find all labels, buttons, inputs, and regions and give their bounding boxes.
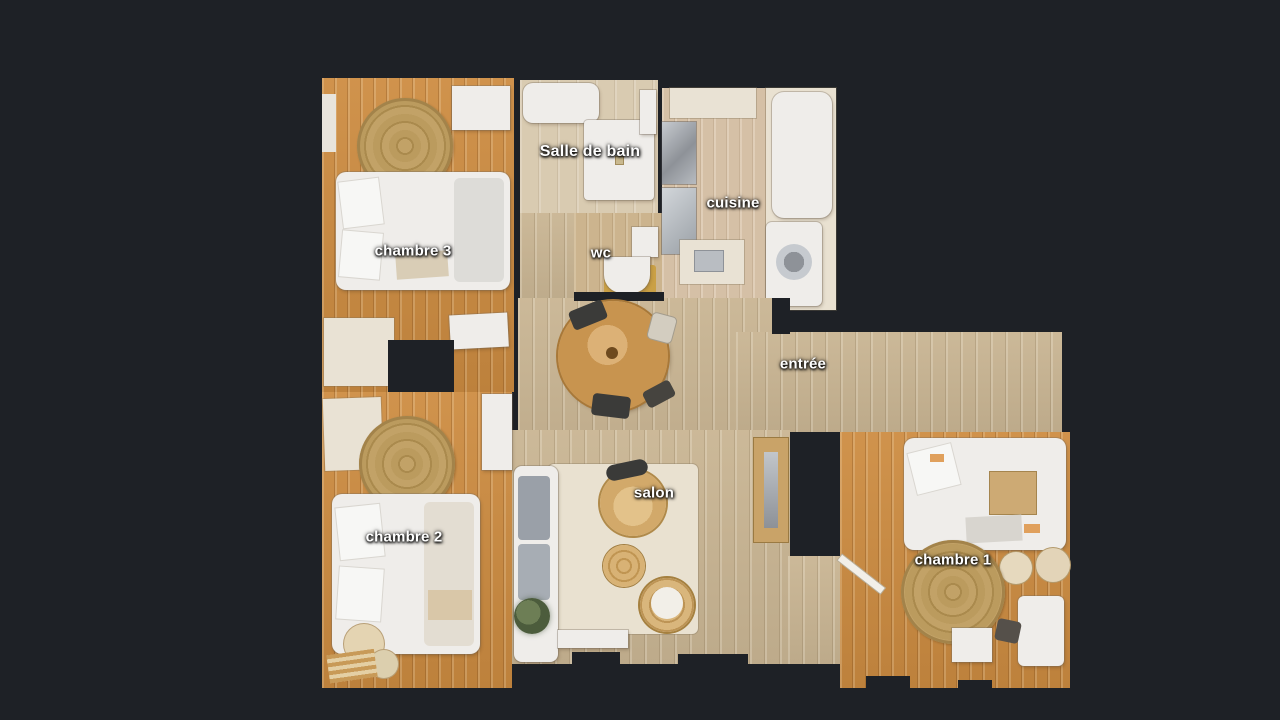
bed <box>904 438 1066 550</box>
scan-gap <box>772 298 790 334</box>
pillow <box>908 443 961 494</box>
scan-gap <box>388 340 454 392</box>
pouf <box>603 545 645 587</box>
fridge <box>772 92 832 218</box>
cabinet <box>449 313 509 350</box>
room-label-salle-de-bain: Salle de bain <box>540 143 640 161</box>
sofa-cushion <box>518 544 550 600</box>
room-label-entree: entrée <box>780 356 826 373</box>
duvet <box>424 502 474 646</box>
bathtub <box>523 83 599 123</box>
floorplan-canvas: chambre 3 Salle de bain wc cuisine entré… <box>0 0 1280 720</box>
kitchen-cabinet <box>670 88 756 118</box>
desk <box>1018 596 1064 666</box>
sink <box>640 90 656 134</box>
throw-blanket <box>428 590 472 620</box>
chair <box>591 393 631 419</box>
accent-cushion <box>1024 524 1040 533</box>
hall-floor-strip <box>520 213 574 305</box>
scan-gap <box>678 654 748 664</box>
bed <box>336 172 510 290</box>
tv-bench <box>558 630 628 648</box>
dresser <box>452 86 510 130</box>
room-chambre-3[interactable] <box>322 78 514 392</box>
bench <box>952 628 992 662</box>
console-table <box>754 438 788 542</box>
room-label-chambre-3: chambre 3 <box>375 243 452 260</box>
scan-gap <box>958 680 992 688</box>
wall-gap <box>574 292 664 301</box>
pillow <box>338 178 383 229</box>
desk-chair <box>994 618 1022 645</box>
room-label-wc: wc <box>591 245 611 262</box>
plant <box>514 598 550 634</box>
table-centerpiece <box>606 347 618 359</box>
hall-closet <box>482 394 512 470</box>
scan-gap <box>866 676 910 688</box>
duvet <box>454 178 504 282</box>
radiator <box>322 94 336 152</box>
basket-chair <box>640 578 694 632</box>
side-table <box>1000 552 1032 584</box>
basket-cushion <box>651 587 683 619</box>
scan-gap <box>572 652 620 664</box>
room-label-salon: salon <box>634 485 674 502</box>
throw-blanket <box>965 515 1022 544</box>
entree-floor <box>736 332 1062 432</box>
wardrobe <box>324 318 394 386</box>
bed-tray <box>990 472 1036 514</box>
mirror <box>764 452 778 528</box>
room-label-chambre-2: chambre 2 <box>366 529 443 546</box>
side-table <box>1036 548 1070 582</box>
accent-cushion <box>930 454 944 462</box>
oven <box>662 122 696 184</box>
sofa-cushion <box>518 476 550 540</box>
pillow <box>336 567 384 622</box>
room-label-chambre-1: chambre 1 <box>915 552 992 569</box>
room-label-cuisine: cuisine <box>706 195 759 212</box>
doorway-floor <box>788 556 840 662</box>
